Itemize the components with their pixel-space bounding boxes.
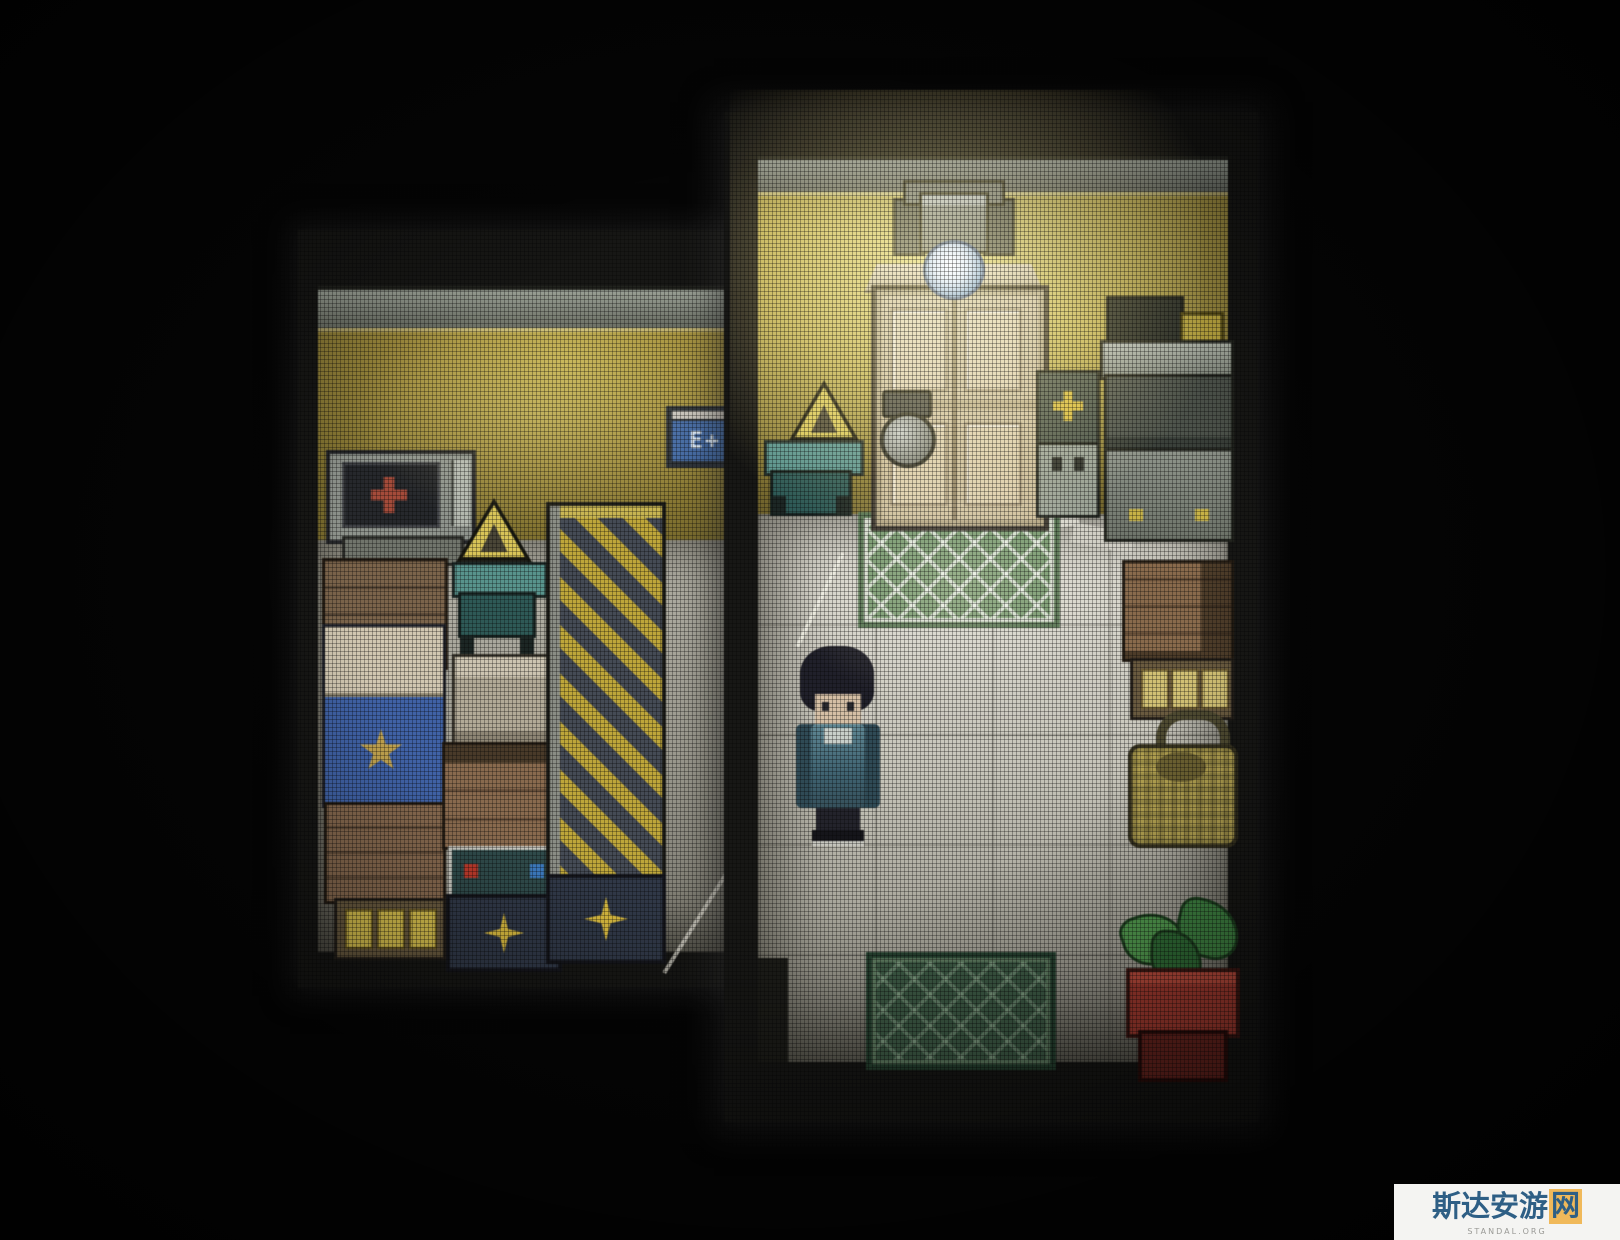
basket-opening: [1156, 752, 1206, 782]
player-legs: [816, 808, 860, 830]
crt-tv: [326, 450, 476, 544]
dresser-top-item: [1106, 296, 1184, 346]
plus-machine-base: [1036, 442, 1100, 518]
left-room-wall-trim: [318, 286, 742, 332]
player-shirt: [824, 728, 852, 744]
warning-triangle-sign-left: [456, 498, 532, 562]
wooden-crate-middle: [442, 742, 558, 850]
plant-pot: [1126, 968, 1240, 1038]
teal-desk-left: [452, 562, 542, 654]
green-rug-bottom: [866, 952, 1056, 1070]
game-scene: E+: [0, 0, 1620, 1240]
plus-machine-head: [1036, 370, 1100, 448]
ceiling-lamp-bulb: [923, 240, 985, 300]
spark-panel-hazard: [546, 874, 666, 964]
floor-shadow: [758, 958, 788, 1062]
warning-triangle-sign-right: [788, 380, 860, 442]
site-watermark: 斯达安游网 STANDAL.ORG: [1394, 1184, 1620, 1240]
player-shoes: [812, 830, 864, 841]
watermark-site-name: 斯达安游网: [1432, 1189, 1582, 1224]
drawer-handle: [1129, 509, 1143, 521]
watermark-site-url: STANDAL.ORG: [1467, 1227, 1546, 1236]
dresser-body: [1104, 374, 1234, 454]
game-viewport[interactable]: E+: [0, 0, 1620, 1240]
plant-pot-base: [1138, 1030, 1228, 1082]
red-button: [464, 864, 478, 878]
blue-button: [530, 864, 544, 878]
green-rug-top: [858, 512, 1060, 628]
wooden-crates-below-bed: [324, 802, 446, 904]
spark-icon: [484, 913, 524, 953]
player-face: [815, 694, 861, 724]
teal-desk-right: [764, 440, 858, 514]
drawer-handle: [1195, 509, 1209, 521]
player-character[interactable]: [794, 646, 882, 846]
spark-panel-middle: [446, 894, 562, 972]
dresser-front: [1104, 448, 1234, 542]
player-shoe-soles: [812, 841, 864, 846]
hazard-striped-door: [546, 502, 666, 882]
tv-screen: [342, 462, 440, 528]
plus-icon: [1053, 391, 1083, 421]
light-table: [452, 654, 554, 748]
red-cross-icon: [371, 477, 407, 513]
wooden-crate-right: [1122, 560, 1234, 662]
star-icon: [359, 729, 403, 773]
bed: [322, 624, 446, 808]
bed-pillow: [325, 627, 443, 697]
spark-icon: [584, 897, 628, 941]
book-shelf: [334, 898, 446, 960]
door-porthole: [880, 412, 936, 468]
